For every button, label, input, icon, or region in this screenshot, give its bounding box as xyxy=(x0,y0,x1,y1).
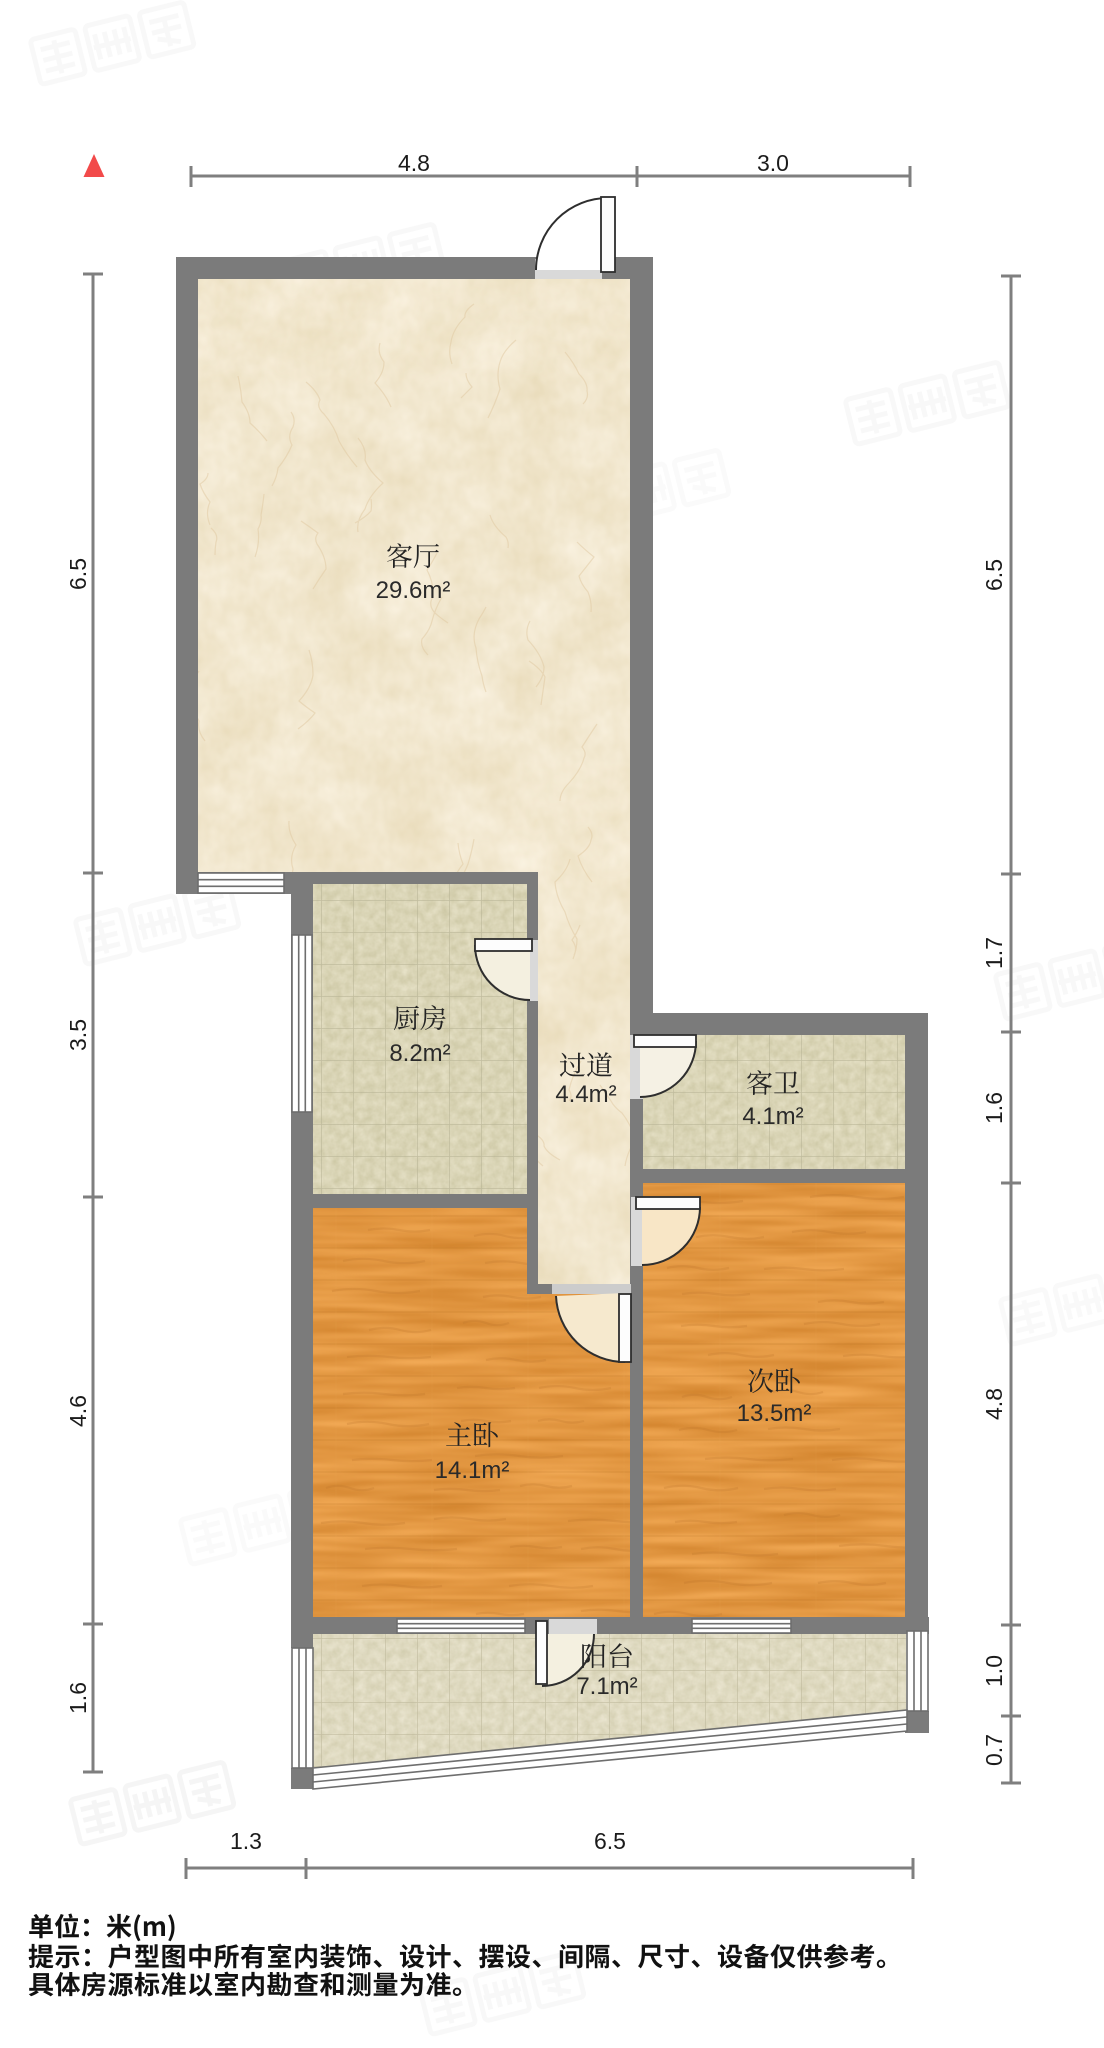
svg-text:29.6m²: 29.6m² xyxy=(376,577,451,604)
svg-text:6.5: 6.5 xyxy=(981,559,1007,591)
svg-text:4.4m²: 4.4m² xyxy=(555,1081,616,1108)
svg-text:13.5m²: 13.5m² xyxy=(737,1400,812,1427)
svg-text:1.3: 1.3 xyxy=(230,1828,262,1854)
svg-text:3.0: 3.0 xyxy=(757,150,789,176)
svg-text:1.6: 1.6 xyxy=(65,1682,91,1714)
svg-text:4.1m²: 4.1m² xyxy=(742,1103,803,1130)
svg-text:14.1m²: 14.1m² xyxy=(435,1457,510,1484)
svg-text:4.6: 4.6 xyxy=(65,1395,91,1427)
svg-text:4.8: 4.8 xyxy=(981,1388,1007,1420)
svg-text:0.7: 0.7 xyxy=(981,1734,1007,1766)
svg-text:4.8: 4.8 xyxy=(398,150,430,176)
svg-text:6.5: 6.5 xyxy=(594,1828,626,1854)
svg-text:7.1m²: 7.1m² xyxy=(576,1673,637,1700)
svg-text:1.7: 1.7 xyxy=(981,937,1007,969)
svg-text:1.6: 1.6 xyxy=(981,1092,1007,1124)
svg-text:3.5: 3.5 xyxy=(65,1019,91,1051)
svg-text:8.2m²: 8.2m² xyxy=(389,1040,450,1067)
svg-text:6.5: 6.5 xyxy=(65,558,91,590)
svg-text:1.0: 1.0 xyxy=(981,1655,1007,1687)
